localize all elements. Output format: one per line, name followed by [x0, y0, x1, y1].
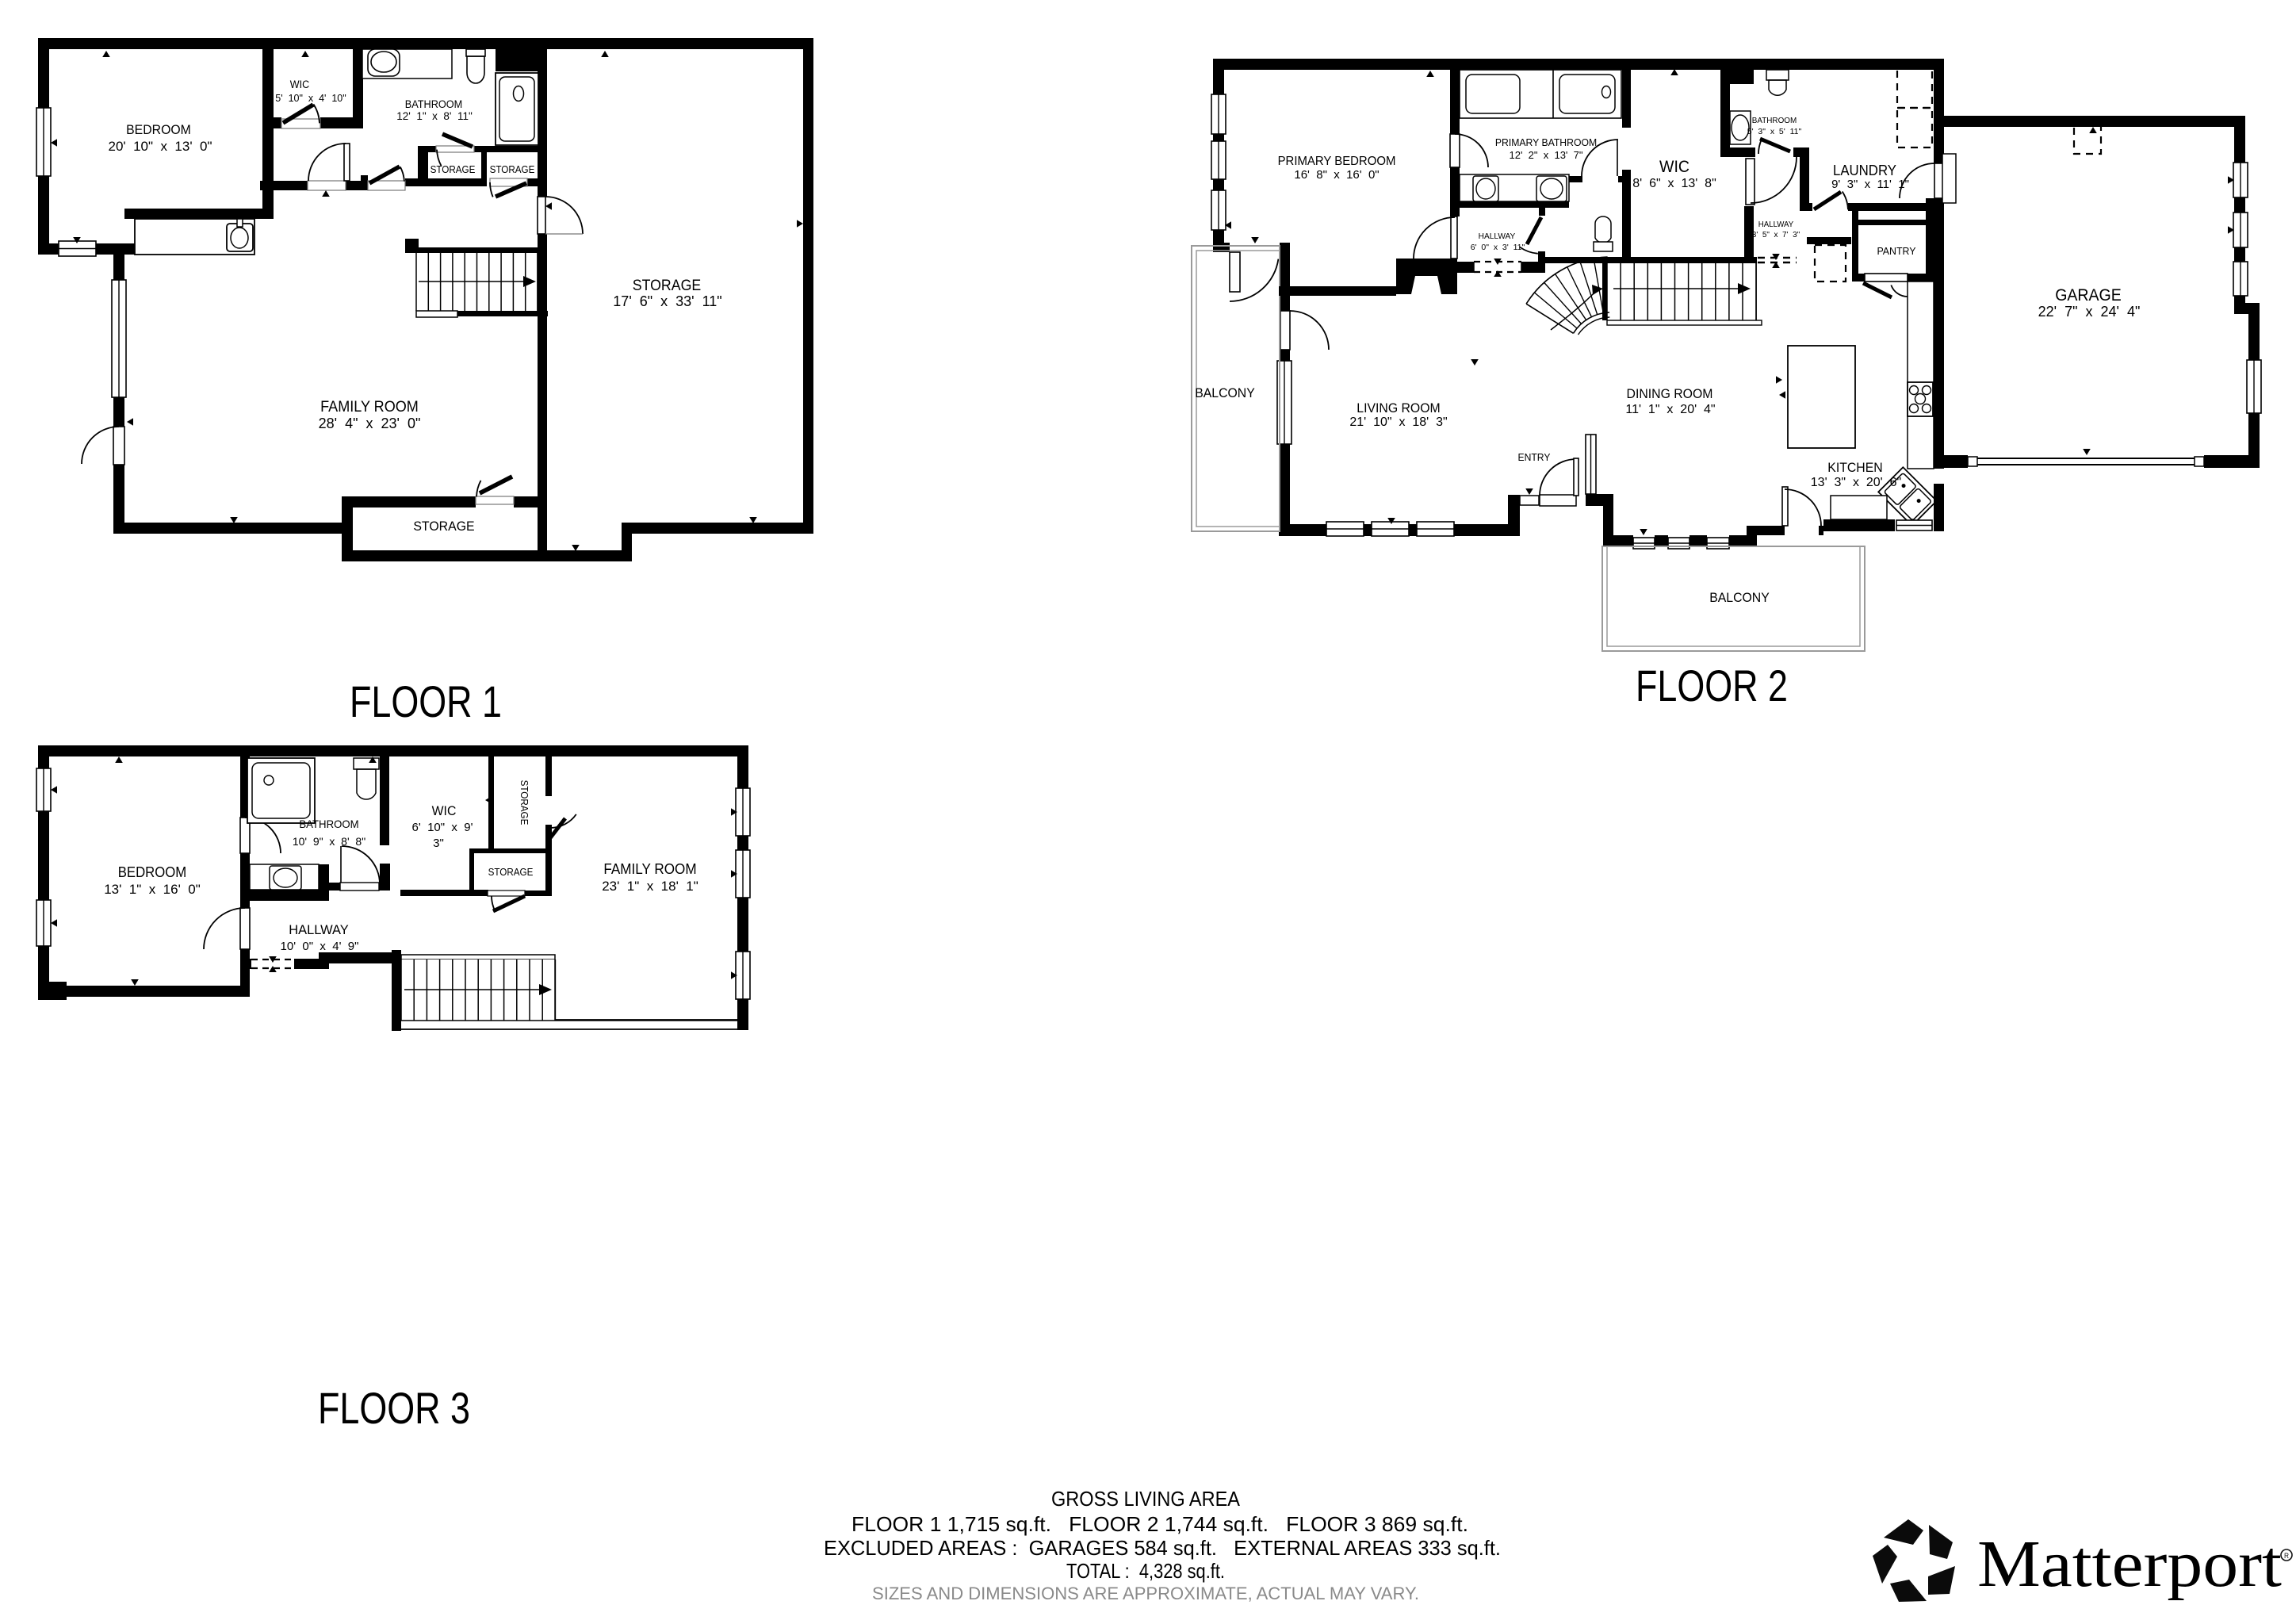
svg-text:SIZES AND DIMENSIONS ARE APPRO: SIZES AND DIMENSIONS ARE APPROXIMATE, AC… [872, 1584, 1419, 1603]
svg-text:10' 0" x 4' 9": 10' 0" x 4' 9" [281, 940, 359, 953]
svg-text:STORAGE: STORAGE [490, 164, 535, 175]
svg-text:FLOOR 1: FLOOR 1 [350, 676, 502, 726]
svg-text:FAMILY ROOM: FAMILY ROOM [320, 399, 419, 416]
svg-text:GROSS LIVING AREA: GROSS LIVING AREA [1051, 1487, 1241, 1511]
svg-text:STORAGE: STORAGE [488, 867, 534, 878]
svg-text:BALCONY: BALCONY [1709, 590, 1770, 605]
svg-text:KITCHEN: KITCHEN [1827, 460, 1882, 475]
svg-text:ENTRY: ENTRY [1518, 451, 1551, 463]
svg-text:28' 4" x 23' 0": 28' 4" x 23' 0" [319, 416, 421, 431]
svg-text:5' 10" x 4' 10": 5' 10" x 4' 10" [275, 93, 346, 104]
svg-text:3' 5" x 7' 3": 3' 5" x 7' 3" [1752, 231, 1800, 239]
svg-text:PRIMARY BEDROOM: PRIMARY BEDROOM [1278, 155, 1396, 168]
svg-text:FAMILY ROOM: FAMILY ROOM [603, 861, 696, 877]
svg-text:Matterport: Matterport [1977, 1527, 2282, 1601]
svg-text:12' 2" x 13' 7": 12' 2" x 13' 7" [1510, 149, 1583, 161]
svg-text:WIC: WIC [432, 803, 457, 818]
svg-text:BEDROOM: BEDROOM [126, 122, 191, 137]
svg-text:3": 3" [433, 837, 444, 850]
svg-text:WIC: WIC [290, 79, 310, 90]
svg-text:5' 3" x 5' 11": 5' 3" x 5' 11" [1747, 127, 1802, 136]
svg-text:22' 7" x 24' 4": 22' 7" x 24' 4" [2038, 304, 2141, 320]
svg-text:PANTRY: PANTRY [1877, 245, 1915, 257]
svg-text:STORAGE: STORAGE [413, 519, 474, 534]
svg-text:6' 0" x 3' 11": 6' 0" x 3' 11" [1471, 243, 1525, 252]
svg-text:FLOOR 2: FLOOR 2 [1636, 661, 1788, 710]
svg-text:R: R [2284, 1552, 2290, 1560]
svg-text:17' 6" x 33' 11": 17' 6" x 33' 11" [613, 293, 721, 309]
svg-text:EXCLUDED AREAS : GARAGES 584: EXCLUDED AREAS : GARAGES 584 sq.ft. EXTE… [824, 1536, 1501, 1560]
svg-text:HALLWAY: HALLWAY [1479, 232, 1516, 241]
svg-text:12' 1" x 8' 11": 12' 1" x 8' 11" [396, 110, 473, 122]
svg-text:STORAGE: STORAGE [430, 164, 476, 175]
svg-text:BEDROOM: BEDROOM [118, 864, 186, 880]
svg-text:13' 3" x 20' 6": 13' 3" x 20' 6" [1811, 476, 1901, 489]
svg-text:TOTAL : 4,328 sq.ft.: TOTAL : 4,328 sq.ft. [1066, 1559, 1225, 1583]
svg-text:BATHROOM: BATHROOM [299, 818, 358, 830]
svg-text:20' 10" x 13' 0": 20' 10" x 13' 0" [108, 139, 212, 154]
svg-text:STORAGE: STORAGE [519, 780, 530, 825]
svg-text:HALLWAY: HALLWAY [1758, 220, 1794, 229]
svg-text:HALLWAY: HALLWAY [289, 922, 349, 937]
svg-text:DINING ROOM: DINING ROOM [1627, 386, 1713, 401]
svg-text:10' 9" x 8' 8": 10' 9" x 8' 8" [293, 835, 365, 848]
svg-text:FLOOR 1 1,715 sq.ft. FLOOR 2: FLOOR 1 1,715 sq.ft. FLOOR 2 1,744 sq.ft… [851, 1512, 1468, 1536]
svg-text:21' 10" x 18' 3": 21' 10" x 18' 3" [1349, 416, 1447, 429]
svg-text:STORAGE: STORAGE [633, 278, 701, 294]
svg-text:16' 8" x 16' 0": 16' 8" x 16' 0" [1294, 168, 1379, 182]
svg-text:WIC: WIC [1659, 158, 1689, 176]
svg-text:9' 3" x 11' 1": 9' 3" x 11' 1" [1831, 178, 1909, 191]
svg-text:PRIMARY BATHROOM: PRIMARY BATHROOM [1495, 136, 1597, 148]
svg-text:8' 6" x 13' 8": 8' 6" x 13' 8" [1632, 177, 1716, 190]
svg-text:BATHROOM: BATHROOM [1752, 116, 1797, 125]
svg-text:LAUNDRY: LAUNDRY [1833, 163, 1896, 178]
svg-text:GARAGE: GARAGE [2055, 286, 2122, 304]
svg-text:13' 1" x 16' 0": 13' 1" x 16' 0" [104, 882, 201, 897]
svg-text:6' 10" x 9': 6' 10" x 9' [412, 821, 473, 834]
svg-text:BATHROOM: BATHROOM [405, 98, 463, 110]
svg-text:11' 1" x 20' 4": 11' 1" x 20' 4" [1625, 403, 1715, 416]
svg-text:BALCONY: BALCONY [1195, 385, 1255, 400]
svg-text:23' 1" x 18' 1": 23' 1" x 18' 1" [602, 879, 698, 894]
svg-text:FLOOR 3: FLOOR 3 [318, 1383, 470, 1433]
svg-text:LIVING ROOM: LIVING ROOM [1357, 400, 1440, 416]
